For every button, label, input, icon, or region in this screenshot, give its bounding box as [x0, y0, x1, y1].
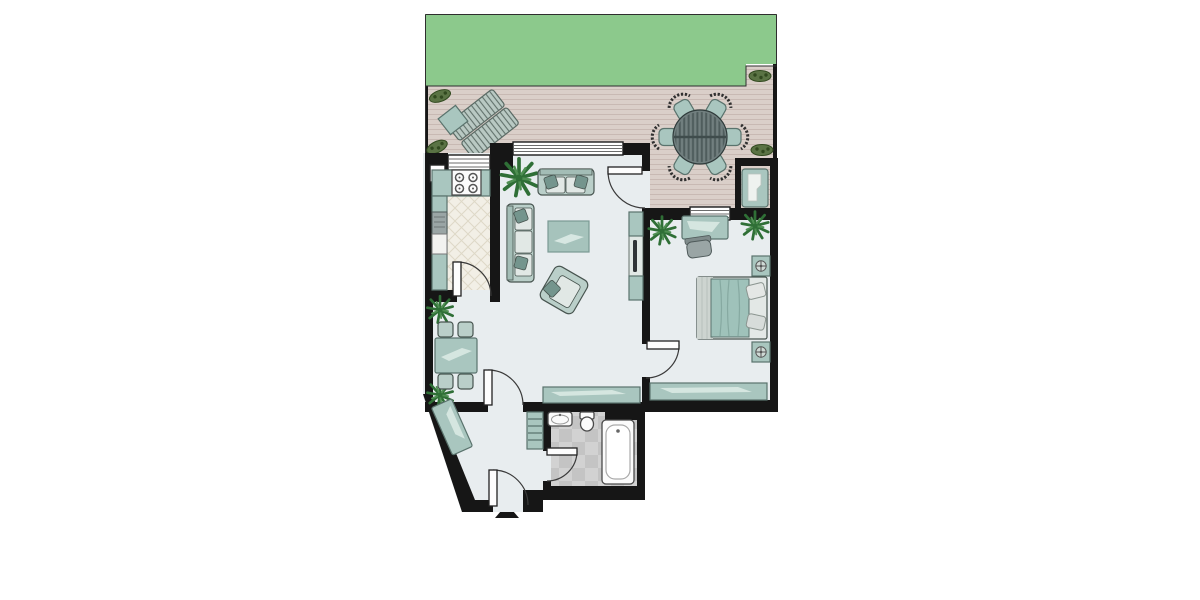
bathtub [602, 420, 634, 484]
double-bed [697, 277, 767, 339]
rug [548, 221, 589, 252]
two-seat-sofa [538, 169, 594, 195]
oven [432, 212, 447, 234]
stove [452, 170, 481, 195]
dining-chair [438, 322, 453, 337]
dining-table [435, 338, 477, 373]
dining-chair [458, 322, 473, 337]
shrub [751, 145, 773, 156]
desk [682, 216, 728, 239]
kitchen-window [448, 155, 490, 170]
dining-chair [438, 374, 453, 389]
nightstand [752, 256, 770, 276]
shrub [749, 71, 771, 82]
living-room-window [513, 142, 623, 155]
floor-plan-page [0, 0, 1200, 600]
sink [548, 412, 572, 426]
tv [633, 240, 637, 272]
bedroom-sideboard [650, 383, 767, 400]
toilet [580, 412, 594, 431]
nightstand [752, 342, 770, 362]
desk-chair [685, 235, 714, 258]
lawn [425, 14, 777, 86]
hall-shelf-unit [527, 412, 543, 449]
dishwasher [432, 234, 447, 254]
tv-unit [629, 212, 643, 300]
dining-chair [458, 374, 473, 389]
floor-plan-canvas [0, 0, 1200, 600]
terrace-right-border [773, 64, 777, 158]
pillow [746, 313, 767, 330]
niche-sun-lounger [742, 169, 768, 207]
living-sideboard [543, 387, 640, 403]
three-seat-sofa [507, 204, 534, 282]
